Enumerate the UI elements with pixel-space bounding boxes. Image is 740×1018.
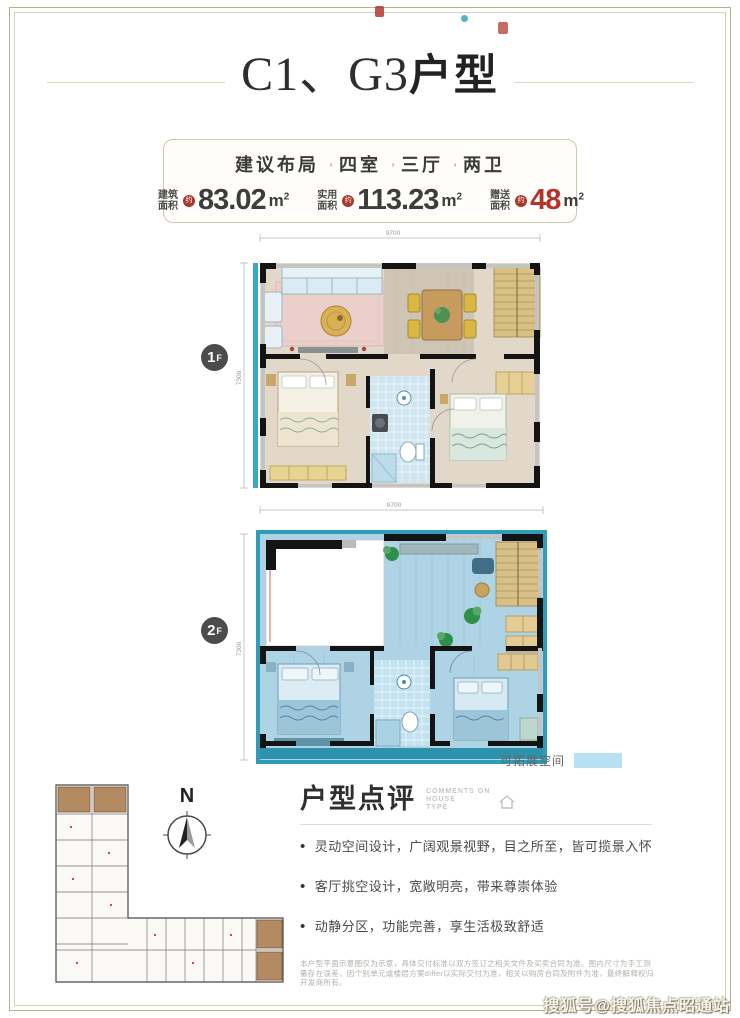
page-title: C1、G3 户型 — [0, 34, 740, 104]
stat-built-area: 建筑面积 约 83.02 m2 — [156, 186, 289, 215]
building-key-plan: N — [50, 778, 298, 990]
divider — [300, 824, 652, 825]
svg-text:9700: 9700 — [387, 502, 402, 509]
decor-mark — [461, 15, 468, 22]
approx-badge: 约 — [342, 195, 354, 207]
review-bullet: 客厅挑空设计，宽敞明亮，带来尊崇体验 — [300, 879, 656, 895]
unit-type-label: 户型 — [409, 41, 499, 103]
review-bullet: 动静分区，功能完善，享生活极致舒适 — [300, 919, 656, 935]
layout-rooms: 四室 — [329, 151, 381, 177]
bathroom — [370, 376, 430, 483]
legend-label: 可拓展空间 — [500, 752, 565, 769]
toilet — [400, 442, 416, 462]
svg-text:7306: 7306 — [236, 641, 243, 656]
disclaimer-text: 本户型平面示意图仅为示意，具体交付标准以双方签订之相关文件及买卖合同为准。图内尺… — [300, 959, 654, 988]
bathroom — [374, 660, 430, 746]
stairs — [496, 542, 540, 606]
legend-expandable-space: 可拓展空间 — [500, 752, 622, 769]
review-section: 户型点评 COMMENTS ON HOUSE TYPE 灵动空间设计，广阔观景视… — [300, 784, 656, 988]
flyer-page: C1、G3 户型 建议布局 四室 三厅 两卫 建筑面积 约 83.02 m2 实… — [0, 0, 740, 1018]
floor1-badge: 1F — [201, 344, 228, 371]
svg-text:9700: 9700 — [386, 230, 401, 237]
floor1-plan: 9700 7306 — [234, 226, 556, 496]
review-title: 户型点评 — [300, 784, 416, 814]
decor-mark — [498, 22, 508, 34]
house-icon — [498, 794, 516, 810]
review-subtitle: COMMENTS ON HOUSE TYPE — [426, 788, 490, 812]
layout-label: 建议布局 — [235, 151, 319, 177]
layout-halls: 三厅 — [391, 151, 443, 177]
stat-usable-area: 实用面积 约 113.23 m2 — [315, 186, 462, 215]
title-rule-left — [47, 82, 225, 83]
floor2-plan: 9700 7306 — [234, 498, 556, 770]
shower — [376, 720, 400, 746]
stat-bonus-area: 赠送面积 约 48 m2 — [488, 186, 584, 215]
coffee-table — [321, 306, 351, 336]
bonus-area-value: 48 — [530, 186, 560, 215]
svg-text:7306: 7306 — [236, 370, 243, 385]
toilet — [402, 712, 418, 732]
compass-icon: N — [163, 785, 211, 859]
stairs — [494, 267, 540, 337]
decor-mark — [375, 6, 384, 17]
svg-text:N: N — [180, 785, 194, 807]
review-bullet: 灵动空间设计，广阔观景视野，目之所至，皆可揽景入怀 — [300, 839, 656, 855]
watermark: 搜狐号@搜狐焦点昭通站 — [543, 992, 730, 1016]
tv-console — [290, 347, 366, 353]
legend-swatch — [574, 753, 622, 768]
layout-baths: 两卫 — [453, 151, 505, 177]
usable-area-value: 113.23 — [357, 186, 438, 215]
built-area-value: 83.02 — [198, 186, 266, 215]
approx-badge: 约 — [515, 195, 527, 207]
floor2-badge: 2F — [201, 617, 228, 644]
void-space — [266, 540, 384, 646]
approx-badge: 约 — [183, 195, 195, 207]
title-rule-right — [515, 82, 693, 83]
unit-codes: C1、G3 — [241, 34, 409, 104]
layout-info-box: 建议布局 四室 三厅 两卫 建筑面积 约 83.02 m2 实用面积 约 113… — [163, 139, 577, 223]
media-console — [400, 544, 478, 554]
balcony-edge — [253, 263, 258, 488]
